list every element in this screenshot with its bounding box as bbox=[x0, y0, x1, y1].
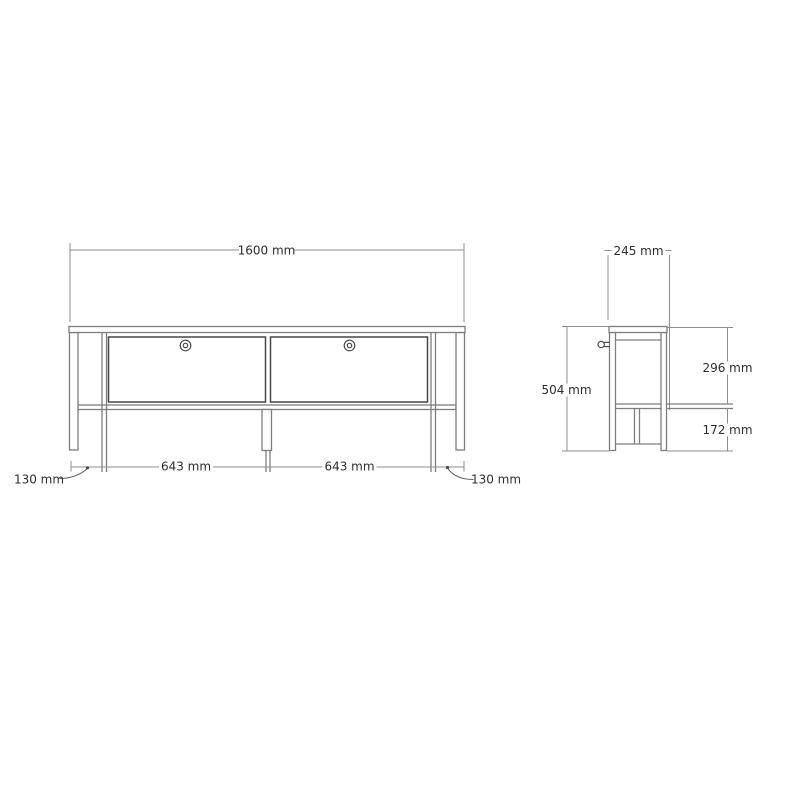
center-support-leg bbox=[262, 410, 272, 451]
overall-width-label: 1600 mm bbox=[238, 244, 296, 258]
side-lower-dimension: 172 mm bbox=[667, 409, 754, 452]
left-drawer-width-label: 643 mm bbox=[161, 460, 211, 474]
side-left-wall bbox=[610, 333, 616, 451]
front-bottom-dimensions: 643 mm 643 mm 130 mm 130 mm bbox=[14, 460, 521, 487]
right-offset-label: 130 mm bbox=[471, 473, 521, 487]
front-width-dimension: 1600 mm bbox=[70, 243, 464, 322]
front-left-leg bbox=[70, 333, 79, 451]
height-label: 504 mm bbox=[541, 383, 591, 397]
right-drawer-width-label: 643 mm bbox=[324, 460, 374, 474]
left-offset-label: 130 mm bbox=[14, 473, 64, 487]
side-height-dimension: 504 mm bbox=[541, 327, 610, 452]
leader-dot bbox=[446, 466, 449, 469]
furniture-dimension-drawing: 1600 mm 643 mm 643 bbox=[0, 0, 800, 800]
right-drawer-front bbox=[271, 337, 428, 402]
side-upper-dimension: 296 mm bbox=[667, 328, 754, 405]
lower-section-label: 172 mm bbox=[702, 423, 752, 437]
leader-dot bbox=[86, 466, 89, 469]
front-view bbox=[69, 327, 465, 473]
side-knob-icon bbox=[598, 341, 604, 347]
shelf-rail bbox=[78, 405, 456, 410]
technical-drawing-page: 1600 mm 643 mm 643 bbox=[0, 0, 800, 800]
depth-label: 245 mm bbox=[613, 244, 663, 258]
top-panel bbox=[69, 327, 465, 333]
front-right-leg bbox=[456, 333, 465, 451]
leader-line bbox=[448, 468, 474, 480]
upper-section-label: 296 mm bbox=[702, 361, 752, 375]
side-top-panel bbox=[609, 327, 667, 333]
side-right-wall bbox=[661, 333, 667, 451]
